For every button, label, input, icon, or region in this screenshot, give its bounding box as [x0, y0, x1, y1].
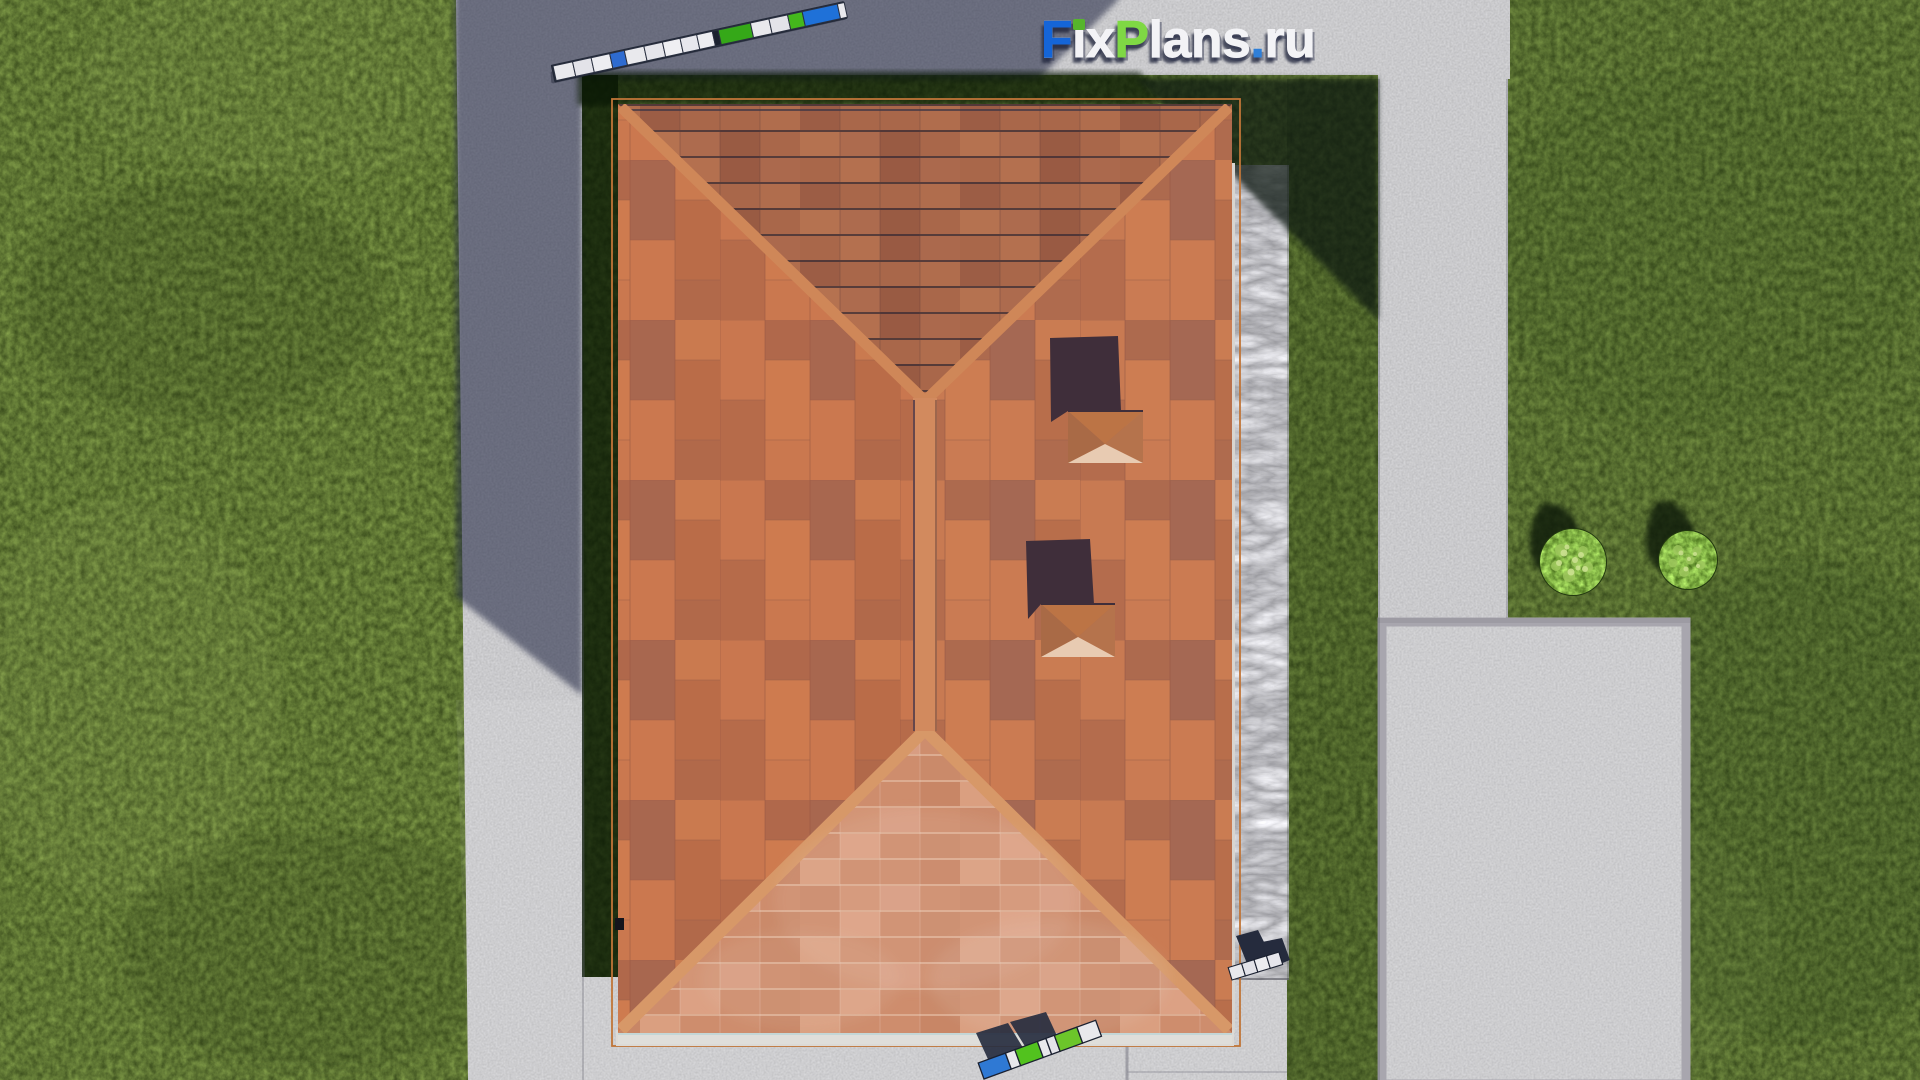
svg-text:F: F — [1041, 10, 1072, 68]
svg-text:FixPlans.ru: FixPlans.ru — [1041, 10, 1315, 68]
